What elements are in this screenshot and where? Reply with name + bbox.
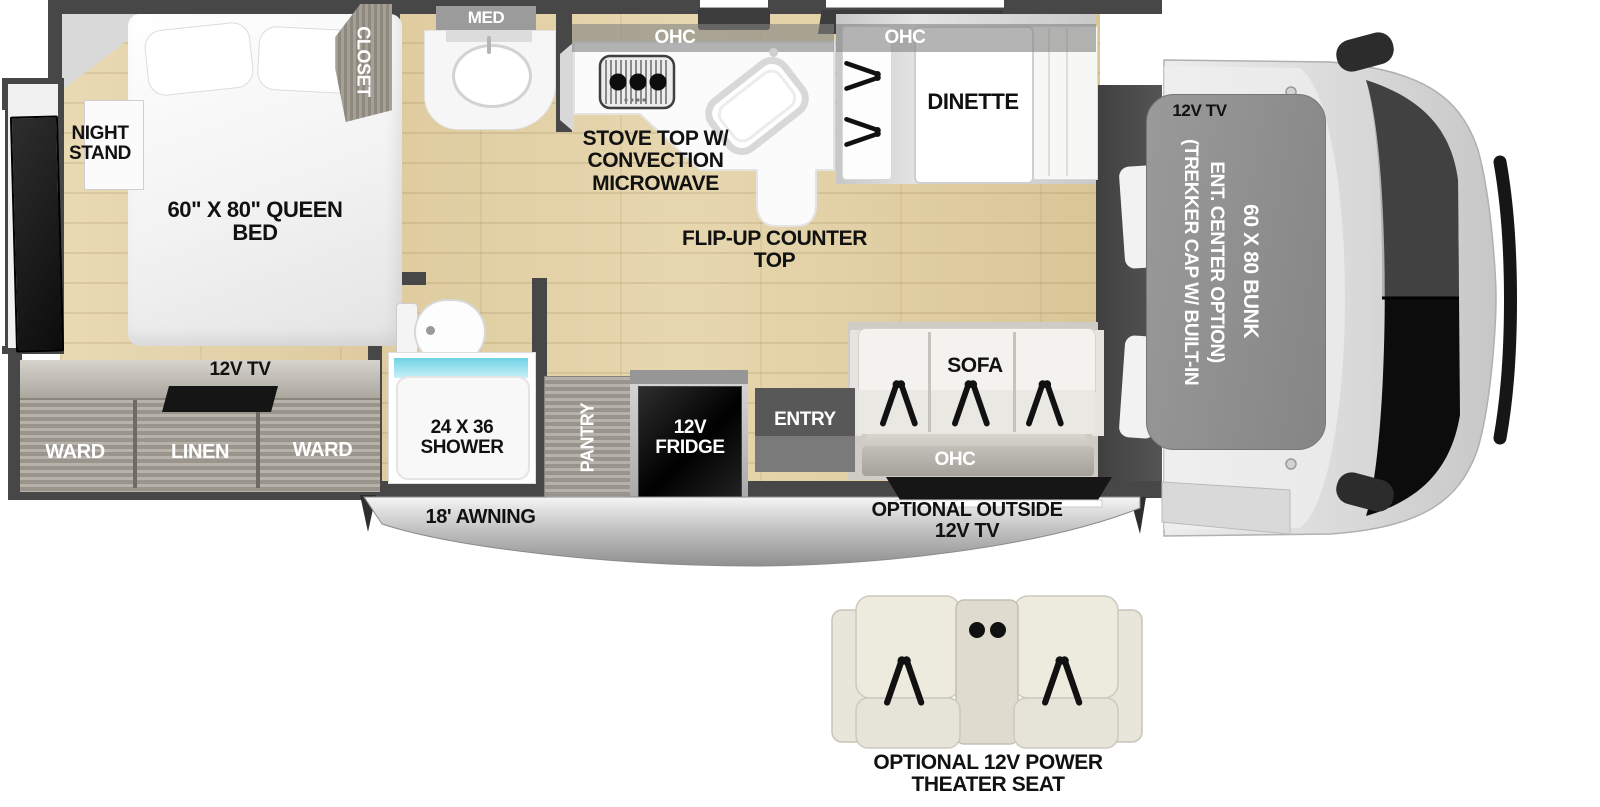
bedroom-tv-label: 12V TV [190, 360, 290, 380]
ward-divider-right [256, 400, 260, 488]
ward-right-label: WARD [275, 440, 370, 461]
bunk-label: 60 X 80 BUNK [1239, 111, 1261, 431]
seatbelt-icon [887, 656, 921, 702]
entry-step [755, 436, 855, 472]
outside-tv-label: OPTIONAL OUTSIDE 12V TV [862, 500, 1072, 542]
sofa-divider-1 [928, 332, 931, 432]
fridge-top-vent [630, 370, 748, 384]
theater-seat [832, 596, 1142, 748]
windshield-upper [1366, 80, 1459, 298]
dinette-label: DINETTE [918, 90, 1028, 113]
night-stand-label: NIGHT STAND [52, 124, 148, 164]
window-bar-dinette [826, 0, 1004, 8]
slideout-window [0, 110, 5, 346]
kitchen-ohc-label: OHC [610, 28, 740, 48]
closet-label: CLOSET [353, 7, 372, 117]
fridge-label: 12V FRIDGE [640, 418, 740, 458]
ward-left-label: WARD [30, 442, 120, 463]
wall-bath-right [556, 0, 572, 132]
bunk-overlay [1146, 94, 1326, 450]
toilet-flush-dot [426, 326, 435, 335]
entry-label: ENTRY [755, 410, 855, 430]
mirror-bottom [1333, 469, 1397, 515]
stove-label: STOVE TOP W/ CONVECTION MICROWAVE [548, 128, 763, 195]
awning-end-right [1130, 497, 1146, 534]
awning-label: 18' AWNING [408, 507, 553, 528]
sofa-ohc-label: OHC [905, 450, 1005, 470]
trekker-cap-note-line1: (TREKKER CAP W/ BUILT-IN [1180, 102, 1200, 422]
cupholder-icon [969, 622, 985, 638]
pillow-left [143, 21, 255, 98]
linen-label: LINEN [155, 442, 245, 463]
trekker-cap-note-line2: ENT. CENTER OPTION) [1206, 102, 1226, 422]
queen-bed-label: 60" X 80" QUEEN BED [155, 198, 355, 245]
bath-faucet [487, 36, 491, 54]
sofa-label: SOFA [925, 355, 1025, 377]
flip-up-counter-label: FLIP-UP COUNTER TOP [672, 228, 877, 273]
pantry-label: PANTRY [578, 383, 597, 493]
med-label: MED [436, 9, 536, 27]
sofa-divider-2 [1013, 332, 1016, 432]
shower-label: 24 X 36 SHOWER [396, 418, 528, 458]
ward-divider-left [133, 400, 137, 488]
theater-seat-label: OPTIONAL 12V POWER THEATER SEAT [838, 752, 1138, 797]
cab-entry-steps [1162, 482, 1290, 534]
seatbelt-icon [1045, 656, 1079, 702]
wall-left-upper [48, 0, 62, 90]
cupholder-icon [990, 622, 1006, 638]
shower-water-strip [394, 358, 528, 378]
front-bumper [1500, 162, 1511, 438]
awning-end-left [360, 495, 376, 532]
bath-sink-bowl [452, 44, 532, 108]
mirror-top [1333, 29, 1397, 75]
window-bar-kitchen [700, 0, 768, 8]
tv-lift [162, 386, 278, 412]
rv-floorplan: NIGHT STAND 60" X 80" QUEEN BED CLOSET 1… [0, 0, 1600, 807]
sofa-seat [858, 390, 1094, 434]
dinette-ohc-label: OHC [845, 28, 965, 48]
windshield-lower [1366, 80, 1460, 516]
